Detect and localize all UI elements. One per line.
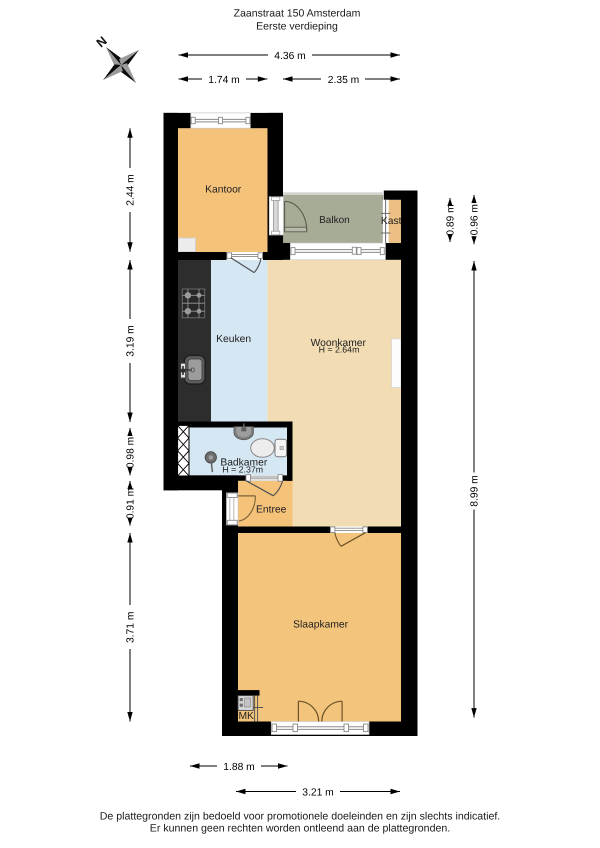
svg-text:1.74 m: 1.74 m (208, 75, 239, 86)
svg-text:Keuken: Keuken (216, 334, 251, 345)
svg-text:0.98 m: 0.98 m (126, 437, 137, 468)
svg-text:Slaapkamer: Slaapkamer (293, 620, 349, 631)
svg-text:Kast: Kast (381, 216, 402, 227)
svg-text:3.21 m: 3.21 m (302, 788, 333, 799)
svg-text:8.99 m: 8.99 m (470, 475, 481, 506)
svg-text:3.19 m: 3.19 m (126, 325, 137, 356)
svg-text:H = 2.37m: H = 2.37m (222, 464, 263, 474)
svg-text:2.44 m: 2.44 m (126, 174, 137, 205)
svg-text:De plattegronden zijn bedoeld: De plattegronden zijn bedoeld voor promo… (100, 811, 500, 823)
svg-text:Er kunnen geen rechten worden: Er kunnen geen rechten worden ontleend a… (150, 823, 450, 835)
svg-text:1.88 m: 1.88 m (223, 762, 254, 773)
svg-text:Zaanstraat 150 Amsterdam: Zaanstraat 150 Amsterdam (234, 8, 361, 20)
svg-text:0.96 m: 0.96 m (470, 204, 481, 235)
svg-text:2.35 m: 2.35 m (328, 75, 359, 86)
svg-text:Entree: Entree (256, 504, 287, 515)
svg-text:3.71 m: 3.71 m (126, 612, 137, 643)
svg-text:4.36 m: 4.36 m (274, 51, 305, 62)
svg-text:MK: MK (238, 711, 254, 722)
svg-text:Balkon: Balkon (319, 215, 350, 226)
svg-text:Kantoor: Kantoor (205, 185, 242, 196)
svg-text:0.89 m: 0.89 m (446, 204, 457, 235)
svg-text:0.91 m: 0.91 m (126, 488, 137, 519)
svg-text:H = 2.64m: H = 2.64m (319, 345, 360, 355)
svg-text:Eerste verdieping: Eerste verdieping (256, 21, 338, 33)
